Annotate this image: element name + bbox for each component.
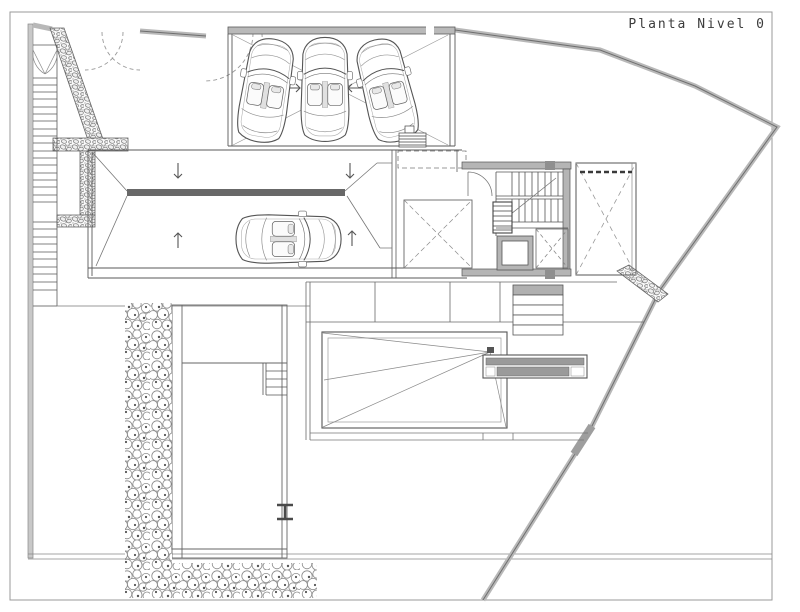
garage-top-wall	[228, 27, 455, 34]
pool-deck-edge	[310, 433, 588, 440]
stone-wall-side	[80, 151, 95, 215]
vegetation-band-bottom	[125, 563, 317, 598]
arrow-up-icon	[348, 231, 356, 246]
pool-depth-lines	[323, 333, 506, 427]
post-i-beam	[277, 505, 293, 519]
lawn-steps	[263, 363, 287, 395]
arrow-down-icon	[174, 163, 182, 178]
house-core	[462, 161, 571, 279]
exterior-steps	[513, 285, 563, 335]
car-icon	[297, 37, 352, 141]
gate-arc-icon	[85, 32, 123, 70]
door-swing-icon	[33, 50, 57, 74]
street-left-wall	[28, 24, 33, 558]
car-icon	[231, 35, 302, 146]
stone-wall-return	[57, 215, 95, 227]
elevator	[497, 236, 533, 270]
garage	[228, 27, 455, 151]
stone-wall-boundary	[617, 265, 668, 302]
driveway-ramp	[88, 150, 467, 278]
stone-wall-top	[53, 138, 128, 151]
floor-plan-sheet: Planta Nivel 0	[0, 0, 800, 612]
gate-arc-icon	[102, 32, 140, 70]
lawn	[172, 305, 293, 558]
terrace-crossed-area	[576, 163, 636, 275]
page-title: Planta Nivel 0	[628, 17, 766, 32]
stone-wall-diagonal	[50, 28, 104, 146]
vegetation-band-left	[125, 303, 172, 565]
ladder-rack	[493, 202, 512, 233]
door-swing-icon	[468, 172, 492, 196]
car-icon	[348, 33, 427, 147]
pool-skimmer	[487, 347, 494, 353]
floor-plan-drawing: Planta Nivel 0	[0, 0, 800, 612]
pool-area	[310, 332, 588, 440]
arrow-down-icon	[346, 163, 354, 178]
entry-canopy	[398, 151, 466, 168]
car-icon	[236, 211, 341, 267]
arrow-up-icon	[174, 233, 182, 248]
pool	[322, 332, 507, 428]
street-stairs	[33, 45, 57, 306]
wall-right	[563, 169, 570, 275]
pool-bench	[483, 355, 587, 378]
ramp-break-line	[127, 189, 345, 196]
